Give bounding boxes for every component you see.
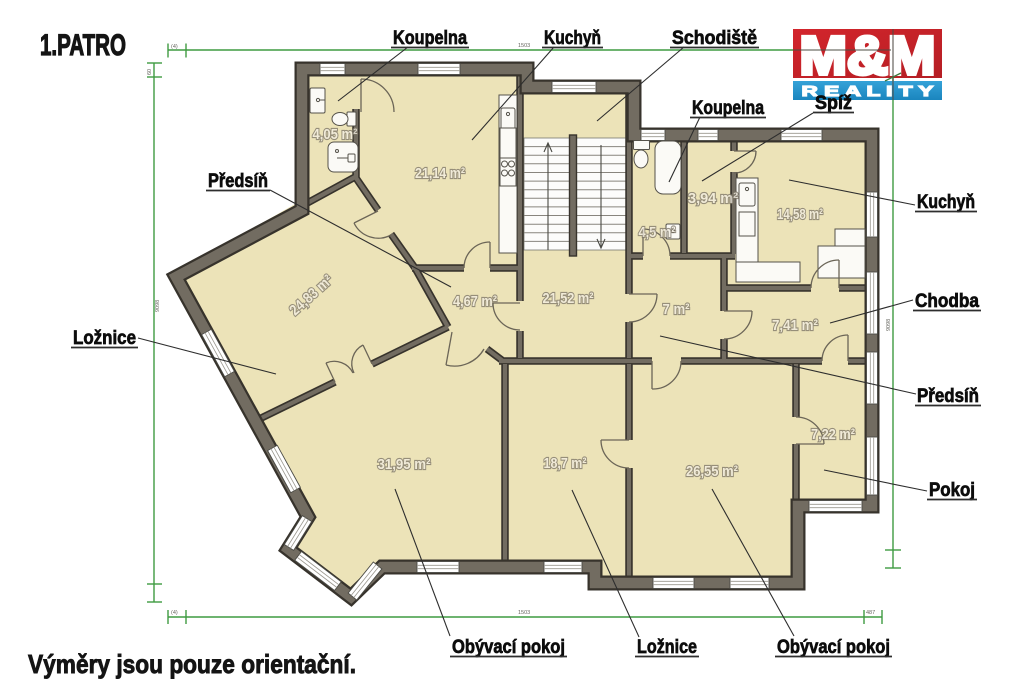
svg-text:Předsíň: Předsíň [917,386,979,407]
svg-text:60: 60 [147,69,153,75]
svg-text:7 m²: 7 m² [663,301,690,318]
svg-text:M&M: M&M [800,26,936,86]
svg-text:Obývací pokoj: Obývací pokoj [777,637,890,658]
svg-text:4,67 m²: 4,67 m² [453,293,497,310]
svg-text:Chodba: Chodba [915,291,979,312]
svg-text:4,5 m²: 4,5 m² [639,224,676,241]
svg-text:Ložnice: Ložnice [73,328,136,349]
svg-text:(4): (4) [171,44,178,50]
svg-text:(4): (4) [171,610,178,616]
svg-text:487: 487 [866,610,875,616]
svg-text:1.PATRO: 1.PATRO [40,29,126,62]
svg-text:14,58 m²: 14,58 m² [777,206,823,223]
svg-text:Kuchyň: Kuchyň [544,28,601,49]
svg-text:7,22 m²: 7,22 m² [811,426,855,443]
svg-text:Kuchyň: Kuchyň [917,192,975,213]
svg-text:Ložnice: Ložnice [637,637,697,658]
svg-text:1503: 1503 [518,43,530,49]
svg-text:26,55 m²: 26,55 m² [686,463,738,480]
svg-text:21,14 m²: 21,14 m² [415,165,465,182]
svg-text:1503: 1503 [518,610,530,616]
svg-text:Koupelna: Koupelna [692,98,764,119]
svg-text:Koupelna: Koupelna [393,28,467,49]
svg-text:Výměry jsou pouze orientační.: Výměry jsou pouze orientační. [28,649,356,679]
svg-text:31,95 m²: 31,95 m² [378,456,431,473]
svg-text:18,7 m²: 18,7 m² [544,455,587,472]
svg-text:Obývací pokoj: Obývací pokoj [452,637,565,658]
svg-text:4,05 m²: 4,05 m² [313,126,358,143]
svg-text:7,41 m²: 7,41 m² [772,317,818,334]
svg-text:Předsíň: Předsíň [208,171,268,192]
svg-text:9098: 9098 [155,300,161,312]
svg-text:3,94 m²: 3,94 m² [688,190,738,207]
svg-text:Spíž: Spíž [815,93,852,114]
svg-text:Schodiště: Schodiště [672,28,757,49]
svg-text:Pokoj: Pokoj [929,480,975,501]
svg-text:9098: 9098 [886,319,892,331]
svg-text:21,52 m²: 21,52 m² [543,290,594,307]
